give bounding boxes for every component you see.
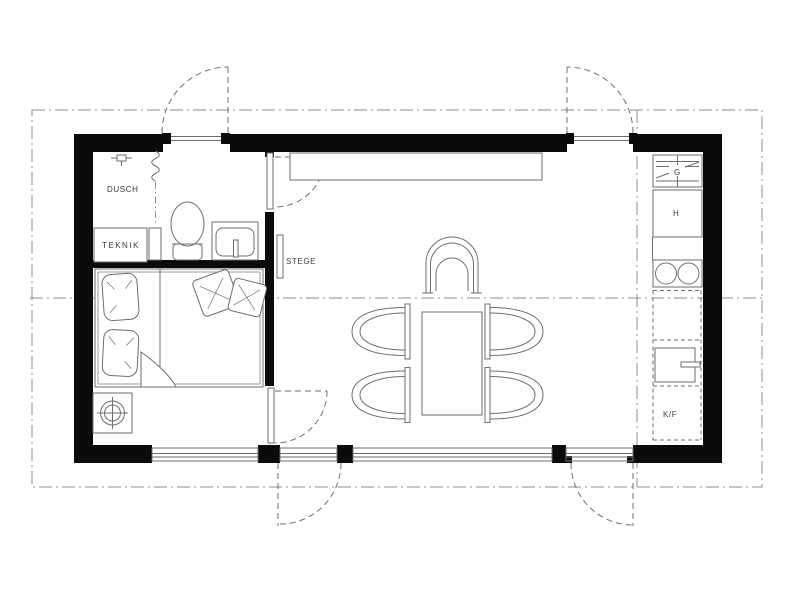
bed-pillow <box>101 273 139 321</box>
dining-chair <box>352 368 410 423</box>
bedroom-interior-door <box>268 388 327 443</box>
toilet <box>171 202 204 260</box>
ladder-label: STEGE <box>286 257 316 266</box>
terrace-door-left-swing <box>278 463 341 526</box>
utility-label: TEKNIK <box>102 241 139 250</box>
shower-head-icon <box>111 155 132 166</box>
kitchen-exterior-door-swing <box>567 67 633 133</box>
decor-pillow <box>227 278 267 318</box>
stove-flue-symbol <box>93 393 132 433</box>
floor-plan-canvas: DUSCH TEKNIK STEGE G H K/F <box>0 0 800 600</box>
fridge-freezer-label: K/F <box>663 410 677 419</box>
dining-chair <box>352 304 410 359</box>
wardrobe-label: G <box>674 168 681 177</box>
terrace-door-right-swing <box>571 463 633 526</box>
armchair <box>422 237 482 293</box>
washbasin <box>212 222 258 260</box>
bed-pillow <box>102 329 139 377</box>
double-bed <box>95 269 267 387</box>
dining-table <box>422 312 482 415</box>
loft-ladder <box>277 235 283 278</box>
bathroom-exterior-door-swing <box>162 67 228 133</box>
oven <box>655 348 700 382</box>
dining-chair <box>485 368 543 423</box>
shower-room-label: DUSCH <box>107 185 138 194</box>
wall-bench <box>290 153 542 180</box>
tall-cabinet-label: H <box>673 209 679 218</box>
shower-curtain <box>152 151 160 224</box>
floor-plan-svg: DUSCH TEKNIK STEGE G H K/F <box>0 0 800 600</box>
dining-chair <box>485 304 543 359</box>
cooktop-2-burner <box>653 260 702 287</box>
